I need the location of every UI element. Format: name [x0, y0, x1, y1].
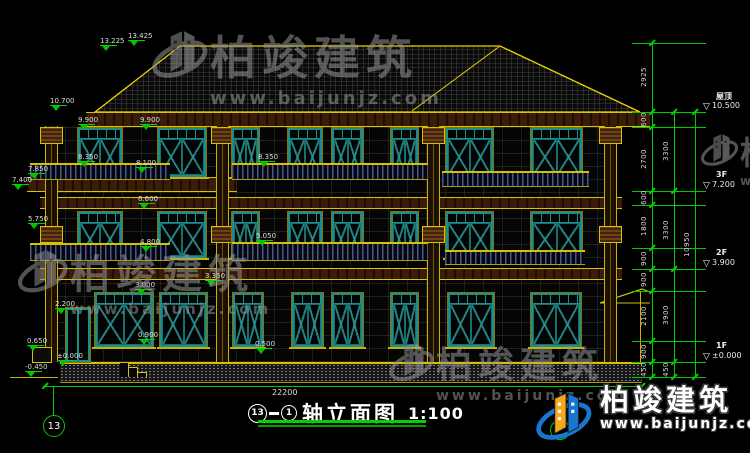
window-sashes [294, 304, 321, 345]
entry-step [138, 372, 147, 377]
elevation-marker-flag [255, 348, 272, 354]
window-transom [234, 130, 257, 139]
dim-segment-label: 900 [640, 272, 648, 287]
elevation-marker-flag [135, 289, 152, 295]
window-sash [393, 304, 405, 345]
elevation-marker-value: 2.200 [55, 300, 75, 308]
dim-chain [674, 112, 675, 377]
dim-segment-label: 600 [640, 190, 648, 205]
axis-bubble-13: 13 [43, 415, 65, 437]
window-sash [308, 304, 322, 345]
window-sash [533, 139, 557, 175]
elevation-marker-value: 5.750 [28, 215, 48, 223]
elevation-marker: -0.450 [25, 363, 48, 377]
window-transom [533, 130, 580, 139]
window [332, 293, 363, 347]
window [391, 293, 418, 347]
window-transom [393, 295, 416, 304]
window [448, 293, 494, 347]
pilaster [427, 126, 440, 362]
window-transom [334, 214, 361, 223]
window-sash [470, 139, 492, 175]
window [233, 293, 263, 347]
elevation-marker-value: 0.650 [27, 337, 47, 345]
brand-logo-url: www.baijunjz.com [600, 416, 750, 432]
pilaster-capital [599, 127, 622, 144]
window-sash [405, 304, 417, 345]
elevation-marker-flag [138, 339, 155, 345]
elevation-marker-flag [50, 105, 67, 111]
window-sill [289, 347, 326, 349]
elevation-marker-flag [78, 124, 95, 130]
pilaster [216, 126, 229, 362]
window-sashes [393, 304, 416, 345]
window-transom [533, 295, 579, 304]
dim-segment-label: 900 [640, 251, 648, 266]
dim-segment-label: 3900 [662, 305, 670, 325]
window-transom [393, 130, 416, 139]
dim-segment-label: 450 [662, 362, 670, 377]
elevation-marker-value: 9.900 [140, 116, 160, 124]
title-dash [269, 412, 279, 415]
window-sashes [448, 139, 491, 175]
elevation-marker-flag [258, 161, 275, 167]
elevation-marker-flag [205, 280, 222, 286]
elevation-marker-value: 13.425 [128, 32, 153, 40]
level-elevation: ±0.000 [712, 351, 742, 360]
elevation-marker-value: ±0.000 [57, 352, 83, 360]
brand-logo-text: 柏竣建筑 [600, 384, 750, 416]
window-transom [160, 130, 204, 139]
level-flag-triangle: ▽ [703, 182, 710, 191]
title-name: 轴立面图 [302, 398, 398, 428]
elevation-marker: 13.225 [100, 37, 125, 51]
elevation-marker: ±0.000 [57, 352, 83, 366]
window-sash [235, 304, 248, 345]
elevation-marker-flag [136, 167, 153, 173]
window-transom [162, 295, 205, 304]
window-transom [234, 214, 257, 223]
elevation-marker: 5.750 [28, 215, 48, 229]
floor-band [40, 197, 622, 209]
elevation-marker: 8.350 [78, 153, 98, 167]
floor-band [40, 268, 622, 280]
entry-step [120, 362, 129, 377]
window-sash [182, 139, 204, 175]
dim-segment-label: 900 [640, 344, 648, 359]
elevation-marker: 9.900 [78, 116, 98, 130]
window-transom [235, 295, 261, 304]
window-sash [450, 304, 471, 345]
elevation-marker: 0.900 [138, 331, 158, 345]
elevation-marker-value: 5.050 [256, 232, 276, 240]
elevation-marker-flag [138, 203, 155, 209]
elevation-marker-flag [256, 240, 273, 246]
elevation-marker: 8.100 [136, 159, 156, 173]
level-name: 1F [716, 341, 727, 350]
elevation-marker-value: 13.225 [100, 37, 125, 45]
elevation-marker-flag [28, 223, 45, 229]
pilaster-capital [422, 226, 445, 243]
window-sash [348, 304, 362, 345]
window-sashes [533, 139, 580, 175]
elevation-marker-value: 0.500 [255, 340, 275, 348]
foundation [60, 362, 642, 383]
elevation-marker-value: 8.100 [136, 159, 156, 167]
level-elevation: 7.200 [712, 180, 735, 189]
elevation-marker: 2.200 [55, 300, 75, 314]
elevation-marker-value: -0.450 [25, 363, 48, 371]
elevation-marker: 6.600 [138, 195, 158, 209]
elevation-marker: 7.400 [12, 176, 32, 190]
elevation-marker: 5.050 [256, 232, 276, 246]
window-transom [80, 214, 120, 223]
window-sill [388, 347, 421, 349]
eave-band [86, 112, 650, 127]
hip-roof [95, 46, 640, 112]
pilaster-capital [211, 226, 234, 243]
pilaster-capital [40, 127, 63, 144]
level-elevation: 3.900 [712, 258, 735, 267]
window-transom [294, 295, 321, 304]
window [446, 128, 493, 177]
elevation-marker-flag [78, 161, 95, 167]
dim-segment-label: 10950 [683, 232, 691, 257]
window-sash [334, 304, 348, 345]
title-underline-thin [258, 425, 426, 427]
window-sash [556, 304, 579, 345]
elevation-marker-value: 10.700 [50, 97, 75, 105]
elevation-marker-flag [140, 246, 157, 252]
drawing-title: 13 1 轴立面图 1:100 [248, 398, 464, 428]
level-flag-triangle: ▽ [703, 103, 710, 112]
dim-segment-label: 450 [640, 362, 648, 377]
elevation-marker: 13.425 [128, 32, 153, 46]
elevation-drawing-canvas: 13 1 轴立面图 1:100 13 22200 柏竣建筑 www.baijun… [0, 0, 750, 453]
window-sashes [334, 304, 361, 345]
window [531, 293, 581, 347]
elevation-marker: 3.000 [135, 281, 155, 295]
window-sill [528, 347, 584, 349]
elevation-marker-value: 3.000 [135, 281, 155, 289]
dim-segment-label: 3300 [662, 220, 670, 240]
pilaster [604, 126, 617, 362]
dim-chain [652, 43, 653, 377]
elevation-marker-value: 4.800 [140, 238, 160, 246]
window-transom [80, 130, 120, 139]
window-sash [184, 304, 206, 345]
dim-segment-label: 2100 [640, 306, 648, 326]
window-sash [294, 304, 308, 345]
window-sashes [162, 304, 205, 345]
elevation-marker-flag [25, 371, 42, 377]
window-sill [92, 347, 156, 349]
elevation-marker-flag [128, 40, 145, 46]
elevation-marker-value: 3.350 [205, 272, 225, 280]
elevation-marker-value: 9.900 [78, 116, 98, 124]
window-sill [445, 347, 497, 349]
window [531, 128, 582, 177]
brand-logo-icon [532, 384, 594, 446]
level-elevation: 10.500 [712, 101, 740, 110]
level-flag-triangle: ▽ [703, 260, 710, 269]
elevation-marker-value: 7.850 [28, 165, 48, 173]
elevation-marker: 0.500 [255, 340, 275, 354]
window-sashes [533, 304, 579, 345]
pilaster-capital [211, 127, 234, 144]
level-flag-triangle: ▽ [703, 353, 710, 362]
window-transom [334, 295, 361, 304]
elevation-marker-flag [57, 360, 74, 366]
width-dimension-value: 22200 [272, 388, 297, 397]
left-ground-line [10, 377, 58, 378]
dim-segment-label: 600 [640, 112, 648, 127]
window-sash [471, 304, 492, 345]
level-name: 2F [716, 248, 727, 257]
window-transom [160, 214, 204, 223]
elevation-marker-value: 6.600 [138, 195, 158, 203]
window-transom [533, 214, 580, 223]
window [160, 293, 207, 347]
window-sill [157, 347, 210, 349]
elevation-marker-value: 8.350 [78, 153, 98, 161]
dim-extension-line [632, 43, 706, 44]
brand-logo: 柏竣建筑 www.baijunjz.com [532, 384, 750, 446]
pilaster-capital [422, 127, 445, 144]
window-sash [97, 304, 124, 345]
elevation-marker: 3.350 [205, 272, 225, 286]
elevation-marker-flag [27, 345, 44, 351]
elevation-marker: 8.350 [258, 153, 278, 167]
title-underline [258, 420, 426, 423]
window-transom [393, 214, 416, 223]
elevation-marker: 0.650 [27, 337, 47, 351]
dim-segment-label: 3300 [662, 141, 670, 161]
window-sash [448, 139, 470, 175]
window-transom [290, 130, 320, 139]
elevation-marker-flag [12, 184, 29, 190]
window-transom [450, 295, 492, 304]
window-transom [334, 130, 361, 139]
title-axis-end-bubble: 1 [281, 405, 297, 421]
window-sash [182, 223, 204, 256]
window-transom [448, 214, 491, 223]
balcony-railing [445, 250, 585, 265]
elevation-marker: 9.900 [140, 116, 160, 130]
pilaster-capital [599, 226, 622, 243]
window-transom [290, 214, 320, 223]
window-sash [533, 304, 556, 345]
window [292, 293, 323, 347]
elevation-marker-flag [100, 45, 117, 51]
window-sash [248, 304, 261, 345]
elevation-marker-value: 7.400 [12, 176, 32, 184]
dim-chain [695, 112, 696, 377]
window-sashes [450, 304, 492, 345]
entry-step [129, 367, 138, 377]
elevation-marker-value: 0.900 [138, 331, 158, 339]
window-transom [97, 295, 151, 304]
dim-segment-label: 2925 [640, 67, 648, 87]
window-sash [162, 304, 184, 345]
window-sill [329, 347, 366, 349]
level-name: 3F [716, 170, 727, 179]
elevation-marker: 4.800 [140, 238, 160, 252]
window-sash [557, 139, 581, 175]
dim-segment-label: 2700 [640, 149, 648, 169]
window-transom [448, 130, 491, 139]
elevation-marker-flag [55, 308, 72, 314]
balcony-railing [442, 171, 589, 187]
dim-segment-label: 1800 [640, 216, 648, 236]
elevation-marker-value: 8.350 [258, 153, 278, 161]
window-sashes [235, 304, 261, 345]
elevation-marker: 10.700 [50, 97, 75, 111]
elevation-marker-flag [140, 124, 157, 130]
